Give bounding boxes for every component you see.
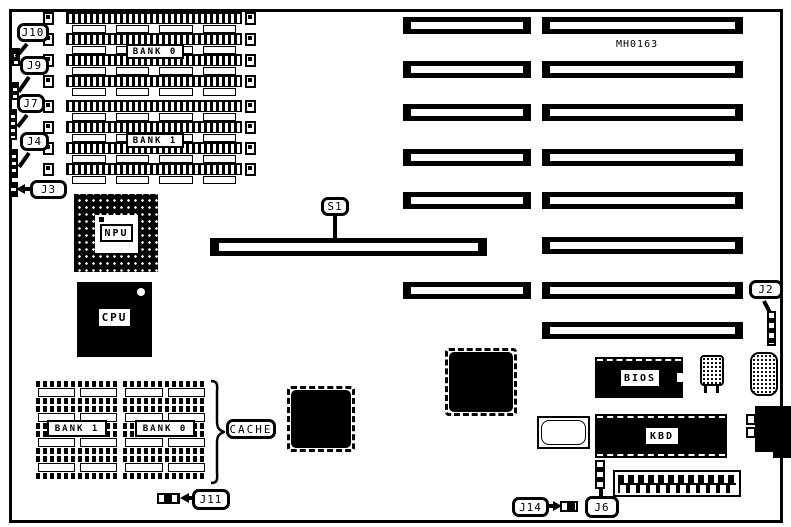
kbd-pins-top: [597, 416, 725, 418]
j4-callout: J4: [20, 132, 49, 151]
cache-socket-part: [123, 398, 207, 404]
crystal-can: [537, 416, 590, 449]
isa-slot: [403, 61, 531, 78]
j10-callout: J10: [17, 23, 49, 42]
simm-bank1-label: BANK 1: [126, 133, 184, 148]
cache-socket-part: [123, 381, 207, 387]
simm-latch-right: [245, 75, 256, 88]
simm-module-row: [72, 88, 236, 96]
simm-latch-left: [43, 75, 54, 88]
cache-dip-socket: [36, 381, 119, 404]
bios-pins: [597, 359, 681, 361]
cache-socket-part: [123, 473, 207, 479]
s1-switch-bar: [210, 238, 487, 256]
isa-slot: [403, 17, 531, 34]
cpu-chip: CPU: [77, 282, 152, 357]
cache-callout: CACHE: [226, 419, 276, 439]
j6-callout: J6: [585, 496, 619, 518]
cache-socket-part: [38, 463, 117, 472]
kbd-label: KBD: [646, 428, 678, 444]
cache-bank1-label: BANK 1: [47, 420, 107, 437]
isa-slot: [542, 192, 743, 209]
j4-connector: [10, 149, 18, 178]
j7-callout: J7: [17, 94, 45, 113]
npu-label: NPU: [100, 224, 133, 242]
isa-slot: [403, 282, 531, 299]
cpu-pin1-dot: [137, 288, 145, 296]
bios-chip: BIOS: [595, 357, 683, 398]
simm-module-row: [72, 113, 236, 121]
isa-slot: [542, 61, 743, 78]
qfp-chip-left: [287, 386, 355, 452]
board-id: MH0163: [616, 39, 658, 50]
isa-slot: [542, 104, 743, 121]
cache-socket-part: [36, 448, 119, 454]
simm-socket-row: [66, 75, 242, 87]
simm-bank0-label: BANK 0: [126, 44, 184, 59]
cache-socket-part: [38, 438, 117, 447]
cache-socket-part: [36, 381, 119, 387]
cache-socket-part: [36, 406, 119, 412]
isa-slot: [542, 237, 743, 254]
simm-latch-right: [245, 54, 256, 67]
din-pin: [746, 427, 756, 438]
cache-socket-part: [36, 473, 119, 479]
simm-socket-row: [66, 121, 242, 133]
isa-slot: [542, 149, 743, 166]
simm-socket-row: [66, 12, 242, 24]
s1-callout: S1: [321, 197, 349, 216]
j2-jumper: [767, 311, 776, 346]
simm-module-row: [72, 176, 236, 184]
keyboard-din-connector-step: [773, 448, 791, 458]
simm-latch-right: [245, 121, 256, 134]
j14-jumper: [560, 501, 578, 512]
cache-socket-part: [123, 448, 207, 454]
power-connector-pins: [618, 475, 736, 483]
cache-bank0-label: BANK 0: [135, 420, 195, 437]
cache-socket-part: [123, 456, 207, 462]
npu-pin1-dot: [99, 217, 104, 222]
kbd-chip: KBD: [595, 414, 727, 458]
power-connector-sockets: [618, 483, 736, 493]
isa-slot: [403, 192, 531, 209]
simm-latch-right: [245, 100, 256, 113]
j2-callout: J2: [749, 280, 783, 299]
cache-dip-socket: [123, 381, 207, 404]
j6-jumper: [595, 460, 605, 489]
simm-latch-right: [245, 163, 256, 176]
cache-socket-part: [125, 388, 205, 397]
npu-socket: NPU: [74, 194, 158, 272]
simm-latch-right: [245, 33, 256, 46]
isa-slot: [542, 282, 743, 299]
j11-callout: J11: [192, 489, 230, 510]
simm-module-row: [72, 25, 236, 33]
j3-callout: J3: [30, 180, 67, 199]
simm-socket-row: [66, 163, 242, 175]
crystal-leg: [716, 386, 719, 393]
npu-socket-center: NPU: [95, 215, 138, 253]
power-connector: [613, 470, 741, 497]
cache-dip-socket: [123, 456, 207, 479]
simm-latch-right: [245, 12, 256, 25]
simm-latch-left: [43, 163, 54, 176]
cache-dip-socket: [36, 456, 119, 479]
j14-callout: J14: [512, 497, 549, 517]
crystal-leg: [704, 386, 707, 393]
simm-module-row: [72, 67, 236, 75]
simm-latch-right: [245, 142, 256, 155]
j9-callout: J9: [20, 56, 49, 75]
cache-brace: [207, 379, 225, 485]
cache-socket-part: [125, 438, 205, 447]
simm-module-row: [72, 155, 236, 163]
cache-socket-part: [38, 388, 117, 397]
simm-socket-row: [66, 100, 242, 112]
crystal-y1: [700, 355, 724, 386]
isa-slot: [542, 17, 743, 34]
cpu-label: CPU: [99, 309, 130, 326]
bios-label: BIOS: [621, 370, 659, 386]
isa-slot: [542, 322, 743, 339]
motherboard-diagram: MH0163 BANK 0 BANK 1 J10 J9 J7 J4 J3 NPU…: [0, 0, 791, 527]
cache-socket-part: [123, 406, 207, 412]
s1-pointer-line: [333, 215, 337, 238]
qfp-chip-right: [445, 348, 517, 416]
din-pin: [746, 414, 756, 425]
isa-slot: [403, 149, 531, 166]
cache-socket-part: [36, 398, 119, 404]
j11-jumper: [157, 493, 180, 504]
bios-notch: [675, 371, 683, 384]
oscillator-component: [750, 352, 778, 396]
cache-socket-part: [36, 456, 119, 462]
cache-socket-part: [125, 463, 205, 472]
keyboard-din-connector: [755, 406, 791, 452]
isa-slot: [403, 104, 531, 121]
kbd-pins-bottom: [597, 454, 725, 456]
